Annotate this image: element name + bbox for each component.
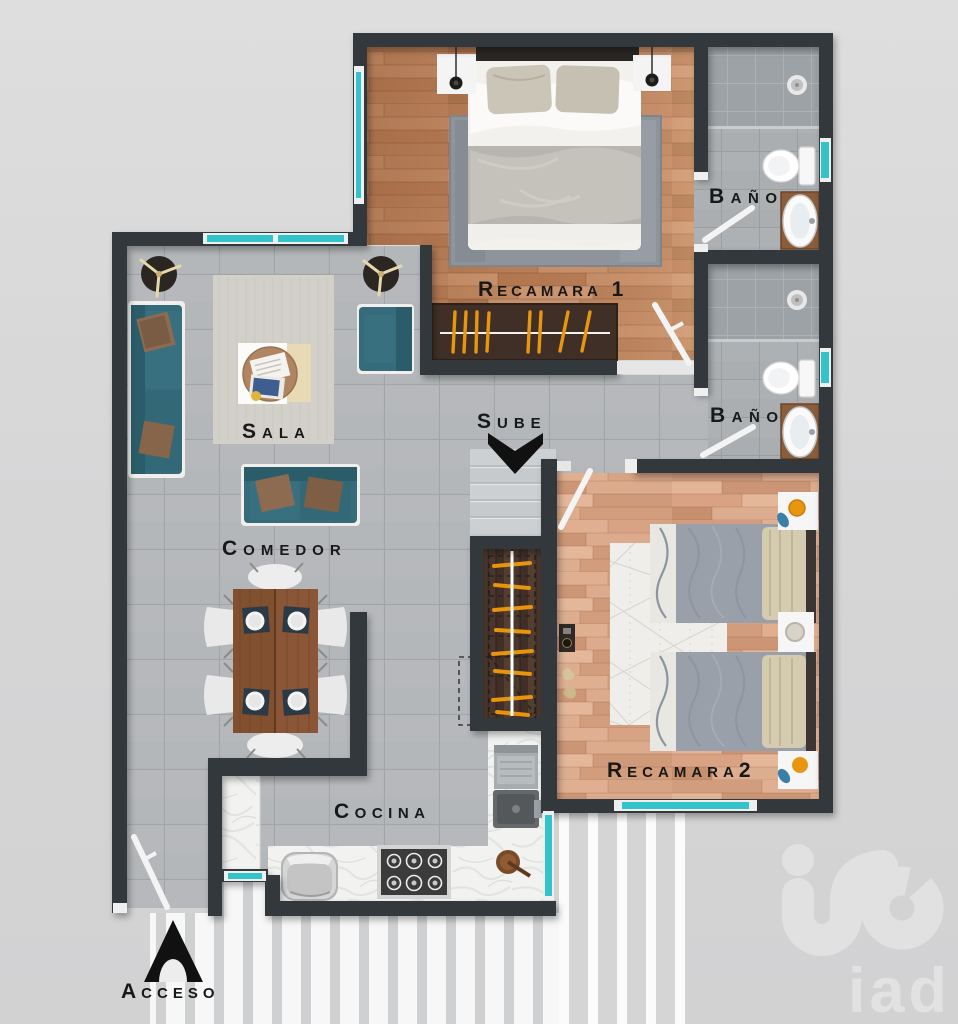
- svg-text:Baño: Baño: [710, 404, 785, 427]
- svg-text:Baño: Baño: [709, 185, 784, 208]
- svg-text:Sube: Sube: [477, 410, 547, 433]
- svg-text:Recamara 1: Recamara 1: [478, 278, 627, 301]
- svg-text:Comedor: Comedor: [222, 537, 347, 560]
- svg-text:Recamara2: Recamara2: [607, 759, 756, 782]
- svg-text:Cocina: Cocina: [334, 800, 431, 823]
- svg-text:Acceso: Acceso: [121, 980, 220, 1003]
- svg-text:iad: iad: [848, 956, 951, 1024]
- svg-text:Sala: Sala: [242, 420, 311, 443]
